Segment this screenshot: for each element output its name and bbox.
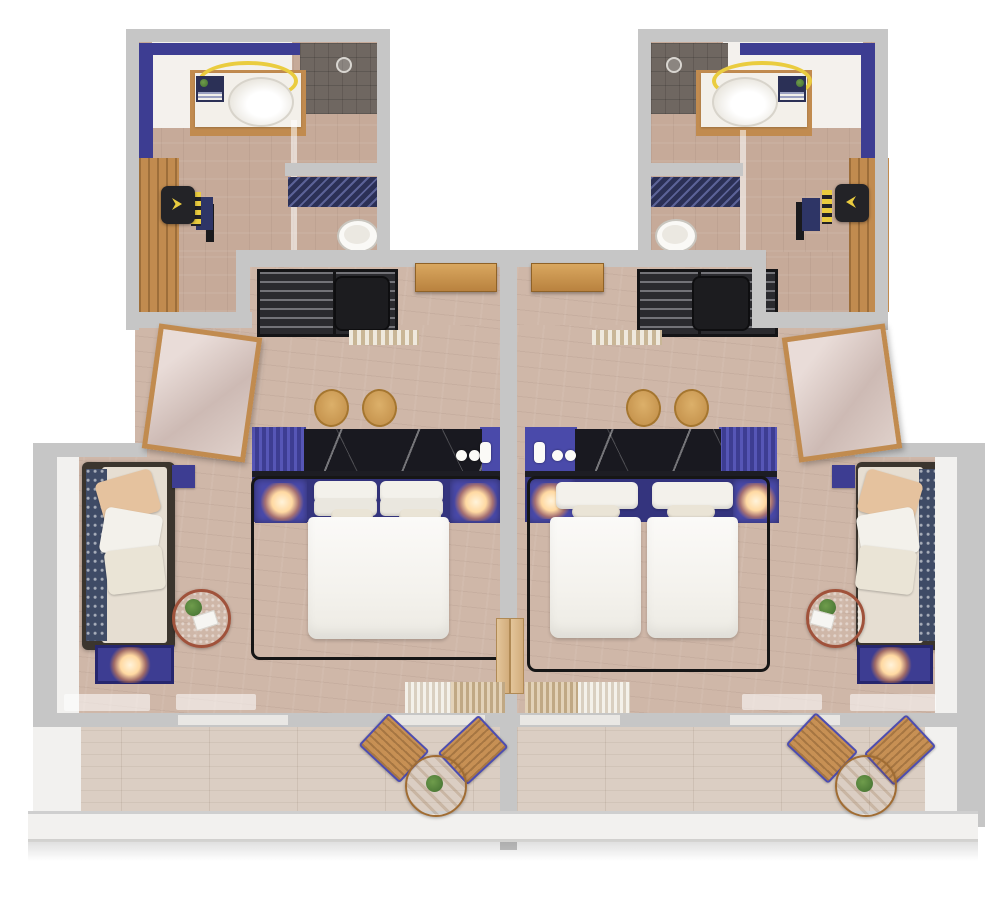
bench-lamp-glow-right [870,647,912,683]
wall-top-right-block [638,29,888,42]
cushion-right-3 [855,545,918,596]
wall-inner-right-bath [651,163,743,176]
vanity-plant-left [200,79,208,87]
luggage-rack-left-1 [257,269,337,337]
side-table-left [172,465,195,488]
sink-right [712,77,778,127]
accent-wall-strip-right-v [861,43,875,158]
cup-right-2 [565,450,576,461]
shower-left [300,43,377,114]
desk-right [802,198,820,231]
wallface-west-left [57,457,79,715]
wallface-east-right [935,457,957,715]
floorplan-scene [0,0,1002,900]
canopy-frame-left [251,476,505,660]
window-left-1 [178,715,288,725]
toilet-bowl-left [344,225,370,244]
doormat-left [349,330,419,345]
curtain-right-white [578,682,630,713]
kettle-left [480,442,491,463]
desk-drawers-right [822,190,832,224]
cup-right-1 [552,450,563,461]
wall-east-right-block [875,29,888,330]
party-wall-center [500,250,517,850]
leaning-mirror-right [782,323,903,462]
curtain-left-white [405,682,451,713]
accent-wall-strip-left-h [139,43,305,55]
entrance-door-right [531,263,604,292]
towel-stack-right [780,92,804,100]
wallface-balcony-west [33,727,81,815]
bench-lamp-glow-left [109,647,151,683]
wall-stub-left [236,250,250,328]
cup-left-1 [456,450,467,461]
window-right-1 [520,715,620,725]
towel-stack-left [198,92,222,100]
wall-west-bedroom-left [33,443,57,715]
wall-stub-right [752,250,766,328]
bath-mat-left [288,177,377,207]
wall-south-right-block [759,312,875,328]
dresser-console-right [719,427,777,474]
wardrobe-left [139,158,179,312]
kettle-right [534,442,545,463]
curtain-left-tan [451,682,505,713]
accent-wall-strip-right-h [740,43,863,55]
wall-south-left-block [136,312,252,328]
entrance-door-left [415,263,497,292]
bath-mat-right [651,177,740,207]
dresser-console-left [252,427,306,474]
wall-west-left-block [126,29,139,330]
cushion-left-3 [104,545,167,596]
balcony-plant-right [856,775,873,792]
vanity-plant-right [796,79,804,87]
wall-east-bedroom-right [957,443,985,827]
shower-head-icon-left [336,57,352,73]
building-shadow [28,839,978,861]
threshold-right-1 [742,694,822,710]
wall-east-left-block [377,29,390,266]
toilet-bowl-right [662,225,688,244]
threshold-right-2 [850,694,936,711]
wall-inner-left-bath [285,163,377,176]
wall-west-right-block [638,29,651,266]
cup-left-2 [469,450,480,461]
suitcase-left [334,276,390,331]
wall-south-outer [28,811,978,842]
wall-top-left-block [126,29,390,42]
canopy-frame-right [527,476,770,672]
marble-counter-left [304,429,482,473]
doormat-right [592,330,662,345]
marble-counter-right [575,429,721,473]
threshold-left-1 [64,694,150,711]
threshold-left-2 [176,694,256,710]
sink-left [228,77,294,127]
balcony-door-right [510,618,524,694]
leaning-mirror-left [142,323,263,462]
glass-partition-right [740,130,746,252]
balcony-plant-left [426,775,443,792]
side-table-right [832,465,855,488]
suitcase-right [692,276,750,331]
curtain-right-tan [525,682,578,713]
accent-wall-strip-left-v [139,43,153,158]
shower-head-icon-right [666,57,682,73]
